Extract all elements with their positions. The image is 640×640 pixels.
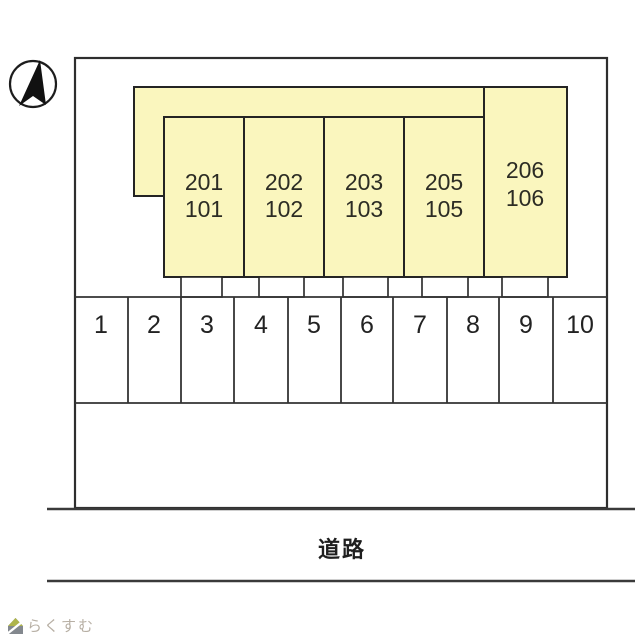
logo-house-icon [7, 618, 23, 634]
parking-space-10-label: 10 [566, 311, 594, 339]
parking-space-1-label: 1 [94, 311, 108, 339]
unit-205-upper-label: 205 [425, 169, 463, 195]
unit-202-upper-label: 202 [265, 169, 303, 195]
unit-203-upper-label: 203 [345, 169, 383, 195]
site-plan-drawing: 201 101 202 102 203 103 205 105 206 106 … [0, 0, 640, 640]
site-plan-canvas: 201 101 202 102 203 103 205 105 206 106 … [0, 0, 640, 640]
unit-206-upper-label: 206 [506, 157, 544, 183]
unit-201-lower-label: 101 [185, 196, 223, 222]
porch-step-1 [181, 277, 222, 297]
porch-step-2 [259, 277, 304, 297]
porch-step-4 [422, 277, 468, 297]
compass-needle [19, 60, 46, 106]
unit-202-lower-label: 102 [265, 196, 303, 222]
watermark-text: らくすむ [27, 618, 95, 635]
parking-space-7-label: 7 [413, 311, 427, 339]
parking-space-6-label: 6 [360, 311, 374, 339]
porch-step-3 [343, 277, 388, 297]
parking-space-9-label: 9 [519, 311, 533, 339]
parking-space-3-label: 3 [200, 311, 214, 339]
rakusumu-logo: らくすむ [7, 618, 95, 635]
parking-space-2-label: 2 [147, 311, 161, 339]
unit-206-lower-label: 106 [506, 185, 544, 211]
north-compass-icon [10, 60, 56, 107]
parking-space-4-label: 4 [254, 311, 268, 339]
unit-201-upper-label: 201 [185, 169, 223, 195]
unit-203-lower-label: 103 [345, 196, 383, 222]
porch-step-5 [502, 277, 548, 297]
road-label: 道路 [318, 537, 366, 562]
parking-space-5-label: 5 [307, 311, 321, 339]
parking-space-8-label: 8 [466, 311, 480, 339]
unit-205-lower-label: 105 [425, 196, 463, 222]
